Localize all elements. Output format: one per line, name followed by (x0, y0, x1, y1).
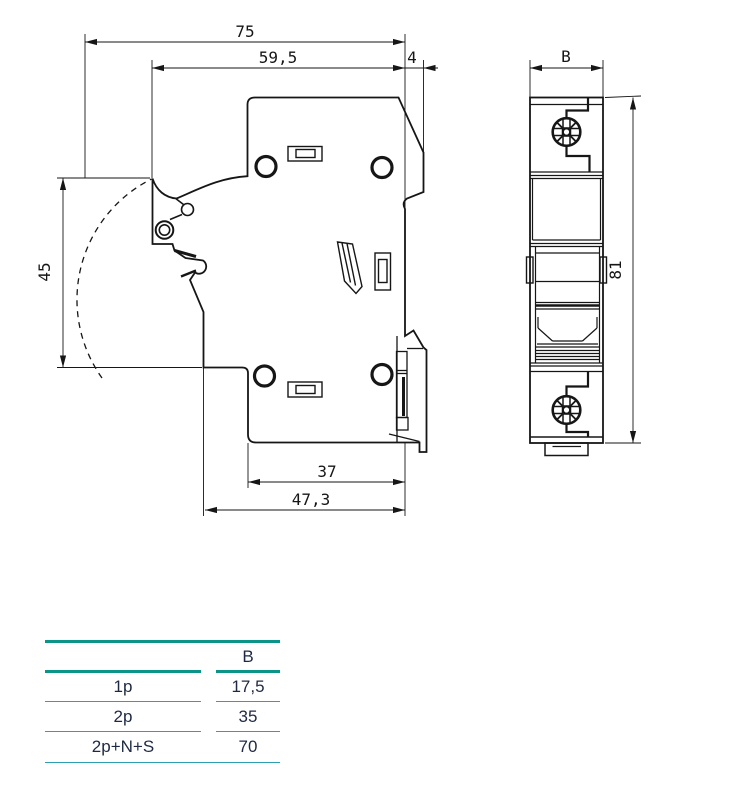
table-row-label: 1p (45, 673, 201, 702)
dim-handle-height: 45 (35, 262, 54, 281)
table-header-b: B (216, 643, 280, 673)
housing-slots (288, 147, 391, 398)
table-row-value: 35 (216, 702, 280, 732)
front-foot (545, 443, 588, 456)
side-view (77, 98, 427, 453)
table-column-gap (201, 673, 216, 702)
dim-depth-inner: 37 (317, 462, 336, 481)
terminal-section-cuts (567, 98, 590, 438)
table-header-empty (45, 643, 201, 673)
table-column-gap (201, 643, 216, 673)
dim-front-height: 81 (606, 260, 625, 279)
table-row-value: 17,5 (216, 673, 280, 702)
technical-drawing: 75 59,5 4 45 37 47,3 B 81 (0, 0, 731, 620)
dim-front-width: B (561, 47, 571, 66)
side-view-outline (153, 98, 427, 453)
dim-width-body: 59,5 (259, 48, 298, 67)
dim-width-total: 75 (235, 22, 254, 41)
front-side-tabs (527, 257, 607, 283)
size-spec-table: B 1p 17,5 2p 35 2p+N+S 70 (45, 640, 280, 763)
mounting-holes (255, 157, 393, 387)
toggle-swing-arc (77, 179, 152, 378)
page: 75 59,5 4 45 37 47,3 B 81 B 1p 17,5 2p 3… (0, 0, 731, 798)
table-column-gap (201, 702, 216, 732)
front-view (527, 98, 607, 456)
table-row-value: 70 (216, 732, 280, 762)
dim-depth-total: 47,3 (292, 490, 331, 509)
table-row-label: 2p (45, 702, 201, 732)
dim-rail-lip: 4 (407, 48, 417, 67)
table-row-label: 2p+N+S (45, 732, 201, 762)
blade-detail (338, 242, 363, 294)
din-rail-clip (389, 336, 423, 442)
pozidriv-screw-icon (553, 396, 581, 424)
table-column-gap (201, 732, 216, 762)
pozidriv-screw-icon (553, 118, 581, 146)
toggle-mechanism (156, 199, 196, 277)
dimension-labels: 75 59,5 4 45 37 47,3 B 81 (35, 22, 625, 509)
